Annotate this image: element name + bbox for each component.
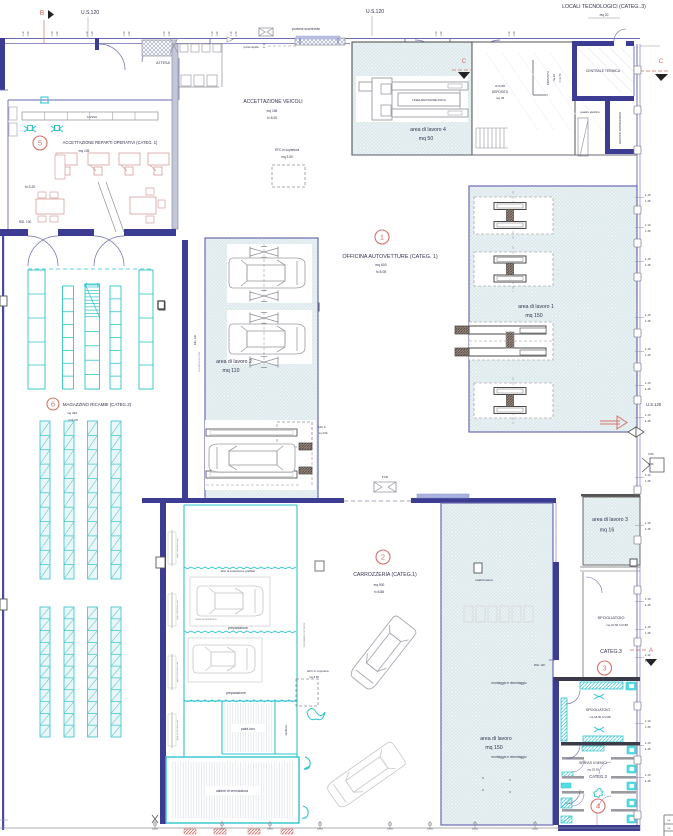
svg-text:mq 35: mq 35 (496, 96, 505, 100)
svg-text:mq 3.50: mq 3.50 (318, 431, 328, 435)
svg-text:mq 105: mq 105 (79, 149, 90, 153)
svg-text:mq 3.50: mq 3.50 (309, 675, 320, 679)
svg-text:1.10: 1.10 (645, 719, 651, 723)
svg-text:1.40: 1.40 (440, 31, 443, 36)
svg-text:area di lavoro: area di lavoro (480, 736, 512, 742)
svg-text:RID. 120: RID. 120 (193, 334, 197, 345)
svg-text:preparazione: preparazione (226, 691, 246, 695)
svg-text:EFC in copertura: EFC in copertura (307, 669, 329, 673)
svg-text:h=5.05: h=5.05 (376, 270, 387, 274)
svg-text:1.45: 1.45 (645, 779, 651, 783)
svg-text:montaggio e rimontaggio: montaggio e rimontaggio (491, 681, 526, 685)
svg-text:mq 16: mq 16 (600, 528, 615, 534)
svg-text:4: 4 (596, 802, 600, 811)
svg-text:DEPOSITO: DEPOSITO (546, 70, 550, 85)
svg-text:RID. 120: RID. 120 (534, 663, 545, 667)
svg-text:5: 5 (38, 139, 42, 148)
svg-text:grigl. estrazione aria: grigl. estrazione aria (176, 537, 179, 557)
svg-text:ATTESA: ATTESA (156, 61, 170, 65)
svg-text:SPOGLIATOIO: SPOGLIATOIO (586, 708, 610, 712)
svg-text:3: 3 (602, 664, 606, 673)
svg-text:marciapiede con tenda: marciapiede con tenda (303, 622, 306, 647)
svg-text:1.40: 1.40 (513, 31, 516, 36)
svg-text:1.45: 1.45 (645, 387, 651, 391)
svg-text:quadro elettrico: quadro elettrico (580, 110, 600, 114)
svg-text:6: 6 (51, 400, 55, 409)
svg-text:1.45: 1.45 (645, 659, 651, 663)
svg-text:1.45: 1.45 (645, 229, 651, 233)
svg-text:1.45: 1.45 (645, 479, 651, 483)
svg-text:1.10: 1.10 (645, 741, 651, 745)
svg-text:mq 3.50: mq 3.50 (281, 155, 293, 159)
svg-text:1.10: 1.10 (645, 773, 651, 777)
svg-text:LOCALI TECNOLOGICI (CATEG..3): LOCALI TECNOLOGICI (CATEG..3) (562, 4, 646, 10)
svg-text:MAGAZZINO RICAMBI (CATEG.2): MAGAZZINO RICAMBI (CATEG.2) (63, 402, 132, 407)
svg-text:1.10: 1.10 (645, 521, 651, 525)
svg-text:montaggio e rimontaggio: montaggio e rimontaggio (491, 755, 526, 759)
svg-text:1.40: 1.40 (27, 31, 30, 36)
svg-text:SPOGLIATOIO: SPOGLIATOIO (598, 615, 625, 620)
svg-text:1.10: 1.10 (645, 223, 651, 227)
svg-text:area di lavoro 1: area di lavoro 1 (518, 304, 554, 310)
svg-text:1.10: 1.10 (51, 31, 54, 36)
svg-text:1.10: 1.10 (22, 31, 25, 36)
svg-text:1.10: 1.10 (645, 597, 651, 601)
svg-text:mq 50: mq 50 (419, 136, 434, 142)
svg-text:vasca di aspirazione: vasca di aspirazione (195, 618, 217, 621)
svg-text:1.10: 1.10 (645, 193, 651, 197)
svg-text:EFC in: EFC in (318, 425, 326, 429)
svg-text:1.45: 1.45 (645, 419, 651, 423)
svg-text:1.45: 1.45 (645, 199, 651, 203)
svg-text:LINEA REVISIONE DOXA: LINEA REVISIONE DOXA (412, 98, 446, 102)
svg-text:ACCETTAZIONE VEICOLI: ACCETTAZIONE VEICOLI (243, 99, 302, 105)
svg-text:mq 20: mq 20 (600, 13, 609, 17)
svg-text:1.10: 1.10 (645, 413, 651, 417)
svg-text:1.10: 1.10 (645, 313, 651, 317)
svg-text:1.10: 1.10 (163, 31, 166, 36)
svg-text:mq 500: mq 500 (374, 583, 385, 587)
svg-text:h=6.88: h=6.88 (374, 590, 384, 594)
svg-text:U.S.120: U.S.120 (646, 402, 662, 407)
svg-text:CATEG.3: CATEG.3 (589, 774, 607, 779)
svg-text:grigl. immissione aria: grigl. immissione aria (176, 661, 179, 682)
svg-text:CARROZZERIA (CATEG.1): CARROZZERIA (CATEG.1) (353, 572, 417, 578)
svg-text:vestibolo: vestibolo (284, 724, 288, 735)
svg-text:1.10: 1.10 (435, 31, 438, 36)
svg-text:mq 18.50 h=2.88: mq 18.50 h=2.88 (589, 715, 611, 719)
svg-text:1.45: 1.45 (645, 527, 651, 531)
svg-text:h=5.05: h=5.05 (267, 116, 277, 120)
svg-text:DEPOSITO: DEPOSITO (492, 90, 509, 94)
svg-text:1.10: 1.10 (86, 31, 89, 36)
svg-text:mq 20: mq 20 (552, 74, 556, 82)
svg-text:H=6.88: H=6.88 (495, 84, 505, 88)
svg-text:RID. 130: RID. 130 (19, 220, 32, 224)
svg-text:1.45: 1.45 (645, 631, 651, 635)
svg-text:preparazione: preparazione (228, 626, 248, 630)
svg-text:1.10: 1.10 (123, 31, 126, 36)
svg-text:U.S.120: U.S.120 (366, 9, 384, 15)
svg-text:2: 2 (381, 553, 385, 562)
svg-text:1.40: 1.40 (216, 31, 219, 36)
svg-text:1.10: 1.10 (645, 257, 651, 261)
svg-text:h=3.20: h=3.20 (25, 185, 36, 189)
svg-text:mq 156: mq 156 (267, 109, 278, 113)
svg-text:mq 394: mq 394 (67, 411, 77, 415)
svg-text:ACCETTAZIONE REPARTI OPERATIVI: ACCETTAZIONE REPARTI OPERATIVI (CATEG. 1… (63, 140, 158, 145)
svg-text:1.10: 1.10 (645, 381, 651, 385)
svg-text:1.40: 1.40 (56, 31, 59, 36)
svg-text:B: B (40, 10, 45, 17)
svg-text:1: 1 (380, 233, 384, 242)
svg-text:1.45: 1.45 (645, 319, 651, 323)
svg-text:EFC in copertura: EFC in copertura (275, 148, 299, 152)
svg-text:area di lavoro 2: area di lavoro 2 (216, 359, 252, 365)
svg-text:FCR: FCR (382, 475, 389, 479)
svg-text:mq 110: mq 110 (223, 368, 240, 374)
svg-text:+: + (592, 748, 594, 752)
svg-text:1.10: 1.10 (645, 653, 651, 657)
svg-text:area di lavoro 4: area di lavoro 4 (410, 127, 446, 133)
svg-text:3.80: 3.80 (648, 452, 654, 456)
svg-text:grigl. estrazione aria: grigl. estrazione aria (176, 599, 179, 619)
svg-text:1.45: 1.45 (645, 263, 651, 267)
svg-text:compressore aria: compressore aria (197, 351, 201, 372)
svg-text:raddrizzatura: raddrizzatura (475, 578, 493, 582)
svg-text:portone scorrevole: portone scorrevole (292, 27, 320, 31)
svg-text:porta rapida: porta rapida (244, 45, 259, 49)
svg-text:mq 600: mq 600 (375, 263, 386, 267)
svg-text:1.40: 1.40 (168, 31, 171, 36)
svg-text:paint-box: paint-box (241, 727, 255, 731)
svg-text:1.40: 1.40 (128, 31, 131, 36)
svg-text:1.40: 1.40 (235, 31, 238, 36)
svg-text:1.45: 1.45 (645, 747, 651, 751)
svg-text:1.45: 1.45 (645, 353, 651, 357)
svg-text:grigl. immissione aria: grigl. immissione aria (176, 719, 179, 740)
svg-text:1.40: 1.40 (91, 31, 94, 36)
svg-text:U.S.120: U.S.120 (81, 10, 99, 16)
svg-text:1.10: 1.10 (645, 625, 651, 629)
svg-text:h=2.70: h=2.70 (558, 73, 562, 82)
svg-text:mq 150: mq 150 (485, 745, 502, 751)
svg-text:mq 25.50: mq 25.50 (587, 768, 599, 772)
svg-text:1.10: 1.10 (508, 31, 511, 36)
svg-text:1.45: 1.45 (645, 603, 651, 607)
svg-text:mq 150: mq 150 (525, 313, 542, 319)
svg-text:C: C (659, 58, 664, 65)
svg-text:OFFICINA AUTOVETTURE (CATEG. 1: OFFICINA AUTOVETTURE (CATEG. 1) (342, 254, 438, 260)
svg-text:GRUPPO ANTINCENDIO: GRUPPO ANTINCENDIO (618, 111, 622, 144)
svg-text:CASSA: CASSA (87, 115, 97, 119)
svg-text:4.30: 4.30 (648, 462, 654, 466)
svg-text:area di lavoro 3: area di lavoro 3 (592, 517, 628, 523)
svg-text:fase di essicazione graffiato: fase di essicazione graffiato (221, 569, 256, 573)
svg-text:cabine di verniciatura: cabine di verniciatura (216, 789, 248, 793)
svg-text:C: C (462, 58, 467, 65)
svg-text:mq 22.50 h=2.88: mq 22.50 h=2.88 (606, 623, 628, 627)
svg-text:1.10: 1.10 (230, 31, 233, 36)
svg-text:1.10: 1.10 (645, 347, 651, 351)
svg-text:1.10: 1.10 (211, 31, 214, 36)
svg-text:CATEG.3: CATEG.3 (600, 649, 622, 655)
svg-text:CENTRALE TERMICA: CENTRALE TERMICA (586, 69, 621, 73)
svg-text:1.45: 1.45 (645, 725, 651, 729)
svg-text:1.10: 1.10 (645, 473, 651, 477)
